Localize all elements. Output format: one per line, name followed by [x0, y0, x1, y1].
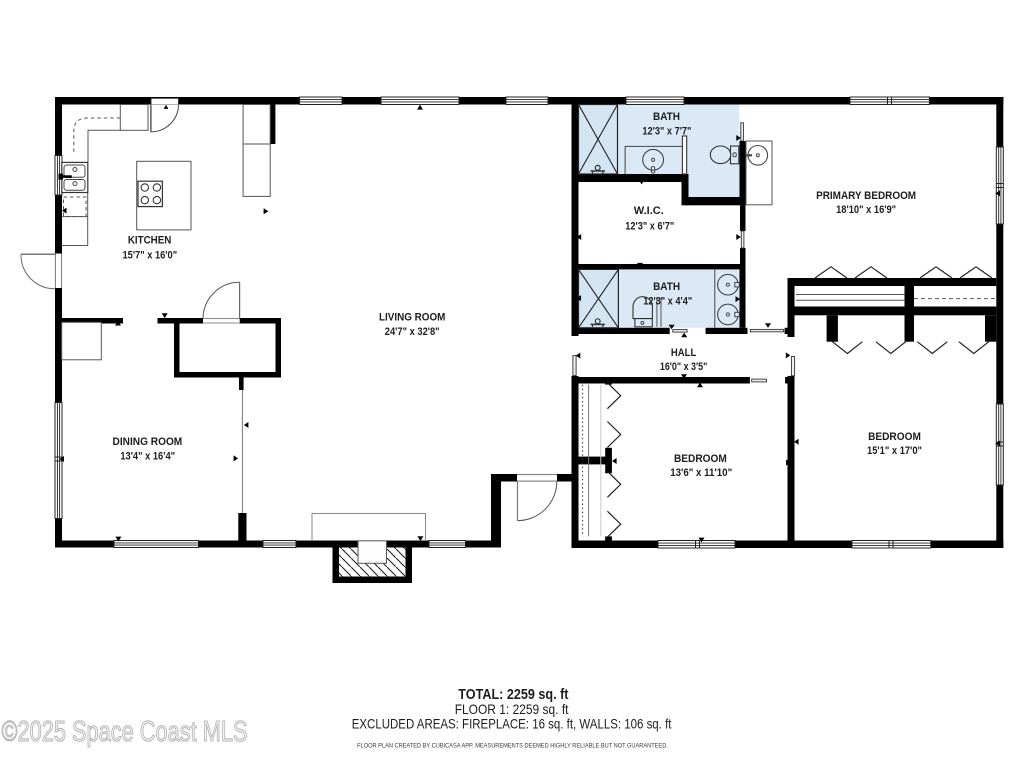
- svg-text:15'1" x 17'0": 15'1" x 17'0": [867, 445, 922, 457]
- svg-text:W.I.C.: W.I.C.: [634, 205, 664, 217]
- svg-text:©2025 Space Coast MLS: ©2025 Space Coast MLS: [2, 716, 248, 748]
- svg-text:LIVING ROOM: LIVING ROOM: [379, 311, 445, 323]
- svg-text:15'7" x 16'0": 15'7" x 16'0": [123, 250, 178, 262]
- svg-text:BEDROOM: BEDROOM: [868, 431, 921, 443]
- svg-text:12'3" x 7'7": 12'3" x 7'7": [642, 125, 691, 137]
- svg-text:FLOOR PLAN CREATED BY CUBICASA: FLOOR PLAN CREATED BY CUBICASA APP. MEAS…: [357, 742, 668, 749]
- svg-text:EXCLUDED AREAS: FIREPLACE: 16: EXCLUDED AREAS: FIREPLACE: 16 sq. ft, WA…: [352, 716, 672, 732]
- svg-text:BATH: BATH: [653, 111, 680, 123]
- svg-text:13'6" x 11'10": 13'6" x 11'10": [670, 467, 732, 479]
- svg-text:KITCHEN: KITCHEN: [128, 235, 172, 247]
- svg-text:PRIMARY BEDROOM: PRIMARY BEDROOM: [816, 190, 916, 202]
- svg-text:13'4" x 16'4": 13'4" x 16'4": [120, 450, 175, 462]
- svg-text:18'10" x 16'9": 18'10" x 16'9": [836, 204, 896, 216]
- svg-text:HALL: HALL: [671, 347, 697, 359]
- svg-text:12'3" x 4'4": 12'3" x 4'4": [643, 295, 692, 307]
- svg-text:24'7" x 32'8": 24'7" x 32'8": [385, 326, 440, 338]
- svg-text:16'0" x 3'5": 16'0" x 3'5": [660, 361, 708, 373]
- svg-text:12'3" x 6'7": 12'3" x 6'7": [625, 221, 674, 233]
- svg-text:BATH: BATH: [653, 281, 680, 293]
- svg-text:DINING ROOM: DINING ROOM: [113, 436, 183, 448]
- svg-text:BEDROOM: BEDROOM: [674, 453, 727, 465]
